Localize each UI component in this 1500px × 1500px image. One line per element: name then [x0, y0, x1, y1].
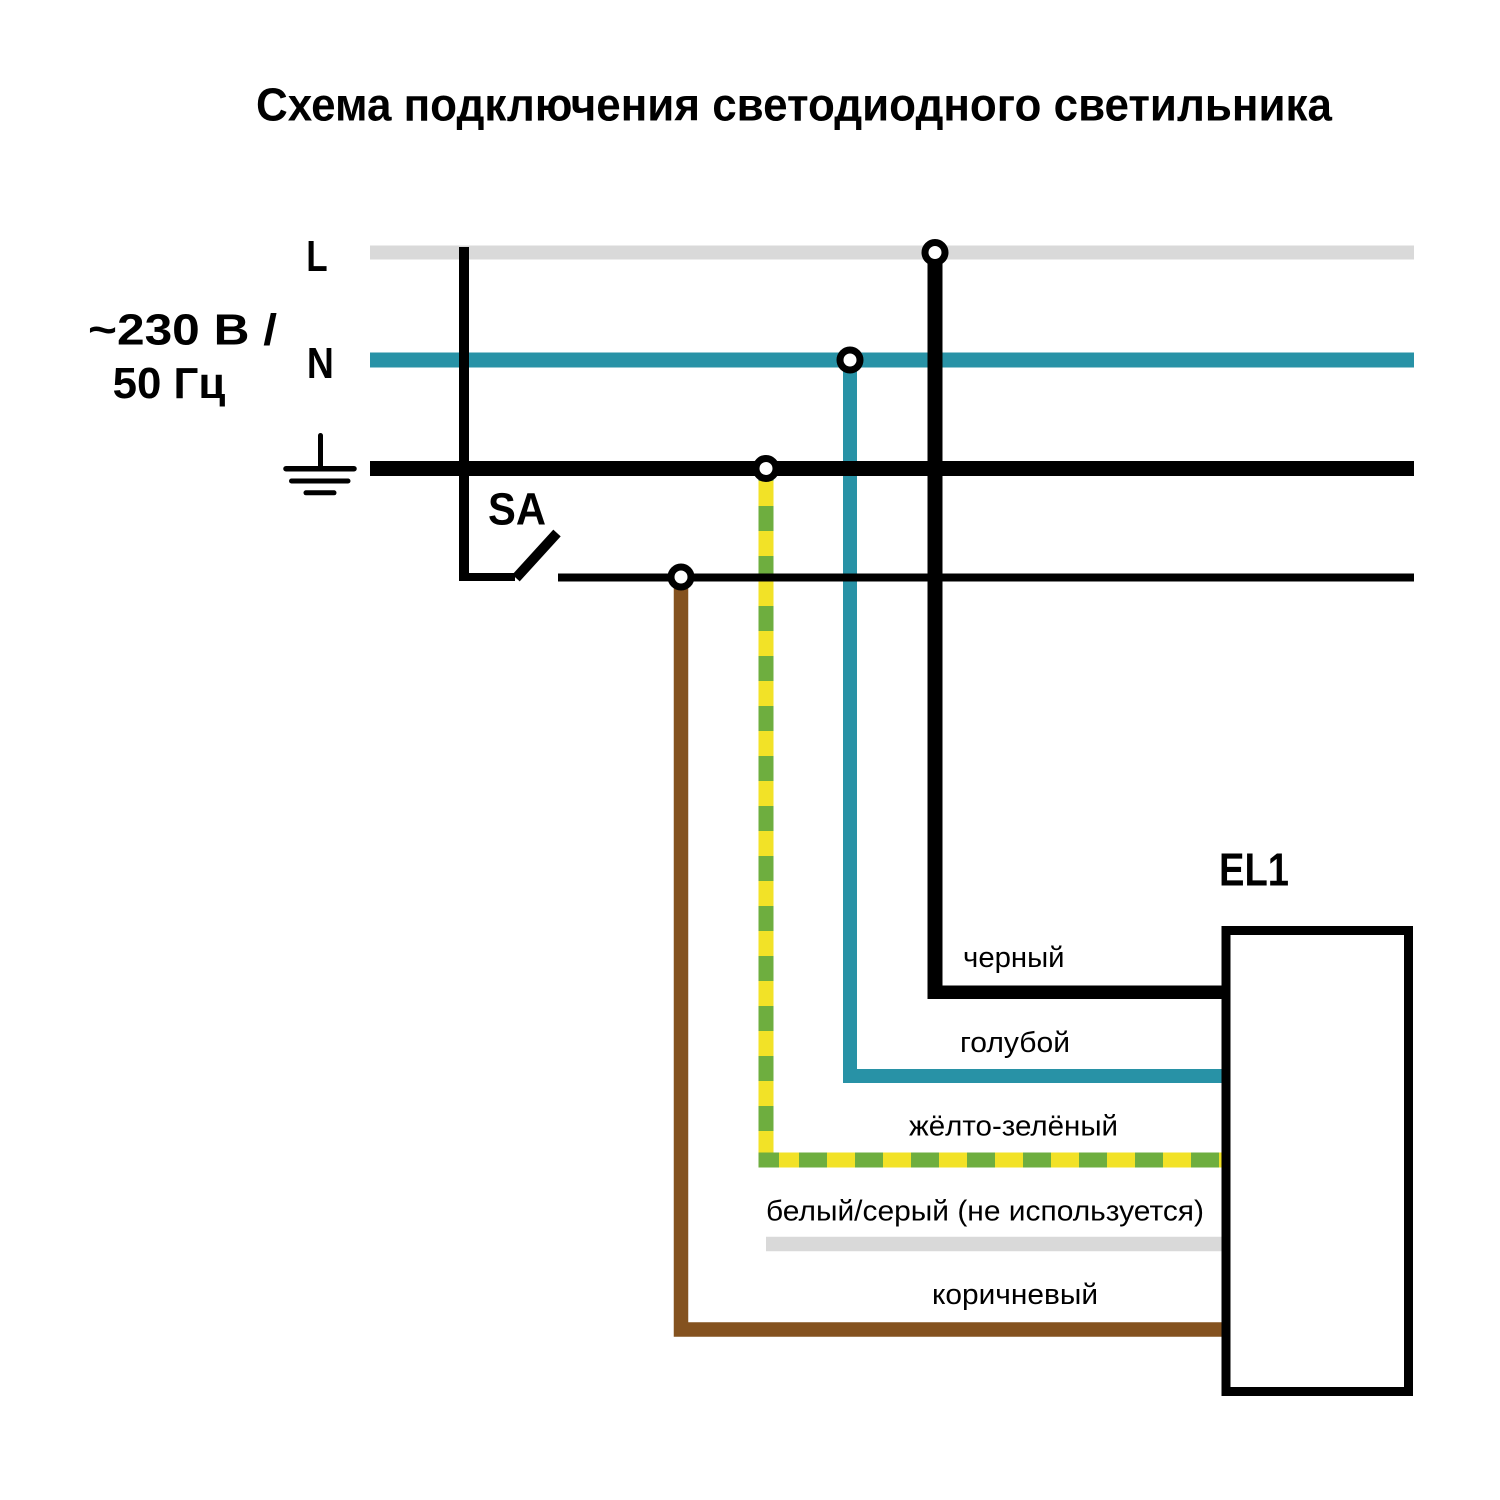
svg-text:белый/серый (не используется): белый/серый (не используется) — [766, 1196, 1204, 1228]
svg-text:Схема подключения светодиодног: Схема подключения светодиодного светильн… — [256, 79, 1332, 131]
svg-text:жёлто-зелёный: жёлто-зелёный — [909, 1111, 1118, 1143]
svg-text:50 Гц: 50 Гц — [113, 359, 226, 408]
svg-text:N: N — [307, 339, 334, 388]
svg-text:~230 В /: ~230 В / — [88, 305, 277, 354]
svg-text:голубой: голубой — [960, 1027, 1070, 1059]
svg-text:черный: черный — [963, 942, 1065, 974]
svg-text:коричневый: коричневый — [932, 1279, 1098, 1311]
svg-text:SA: SA — [488, 484, 546, 535]
svg-text:L: L — [306, 232, 327, 281]
svg-text:EL1: EL1 — [1219, 844, 1289, 896]
